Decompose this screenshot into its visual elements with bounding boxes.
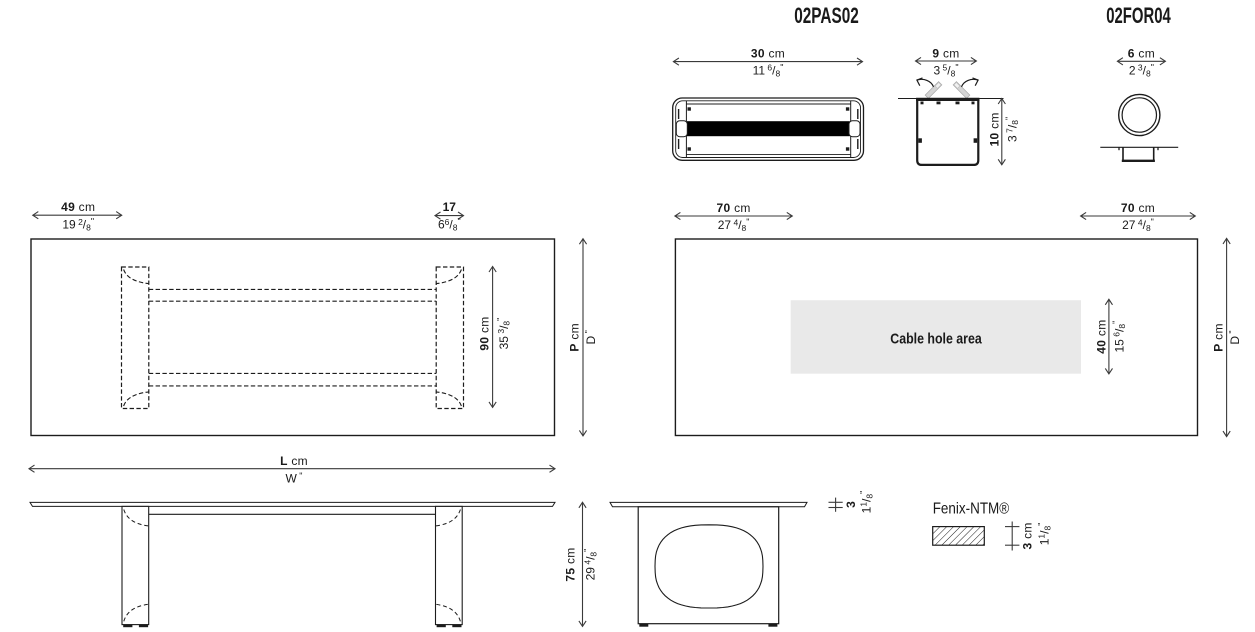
svg-text:40 cm: 40 cm	[1094, 320, 1108, 354]
svg-text:70 cm: 70 cm	[717, 201, 751, 215]
svg-text:P cm: P cm	[1211, 323, 1225, 352]
svg-text:3: 3	[844, 501, 858, 508]
svg-text:Fenix-NTM®: Fenix-NTM®	[933, 501, 1010, 518]
svg-text:P cm: P cm	[568, 323, 582, 352]
svg-text:10 cm: 10 cm	[987, 112, 1001, 146]
svg-text:30 cm: 30 cm	[751, 47, 785, 61]
svg-text:L cm: L cm	[280, 454, 308, 468]
svg-text:17: 17	[443, 200, 457, 214]
svg-text:3 cm: 3 cm	[1020, 522, 1034, 549]
svg-text:Cable hole area: Cable hole area	[890, 331, 982, 348]
svg-text:66/8": 66/8"	[438, 216, 461, 232]
svg-text:02FOR04: 02FOR04	[1106, 3, 1171, 28]
svg-text:11/8": 11/8"	[858, 491, 874, 514]
svg-text:70 cm: 70 cm	[1121, 201, 1155, 215]
svg-text:11/8": 11/8"	[1036, 523, 1052, 546]
svg-text:90 cm: 90 cm	[478, 316, 492, 350]
svg-text:75 cm: 75 cm	[563, 547, 577, 581]
svg-text:6 cm: 6 cm	[1128, 47, 1155, 61]
svg-text:02PAS02: 02PAS02	[794, 3, 859, 28]
svg-text:9 cm: 9 cm	[932, 47, 959, 61]
svg-text:49 cm: 49 cm	[61, 200, 95, 214]
